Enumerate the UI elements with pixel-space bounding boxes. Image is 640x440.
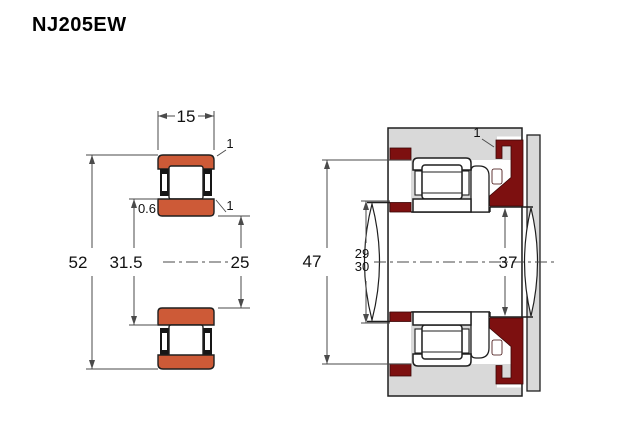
mounted-view: 47 29 30 37 1 xyxy=(303,125,556,396)
dim-rib-label: 31.5 xyxy=(109,253,142,272)
cage-pocket-right-lower xyxy=(205,333,210,350)
housing-shoulder-lower xyxy=(390,364,411,376)
arrow-right xyxy=(205,113,214,119)
roller xyxy=(422,325,462,359)
cage-pocket-left-upper xyxy=(162,174,167,191)
thrust-collar-upper xyxy=(471,166,489,212)
dim-chamfer-outer-label: 1 xyxy=(226,136,233,151)
cage-pocket-left-lower xyxy=(162,333,167,350)
thrust-collar-lower xyxy=(471,312,489,358)
bearing-drawing: 15 1 52 31.5 xyxy=(0,0,640,440)
labyrinth-notch-lower xyxy=(492,340,502,355)
dim-od-label: 52 xyxy=(69,253,88,272)
chamfer-inner-leader xyxy=(216,200,226,212)
dim-fillet-label: 1 xyxy=(473,125,480,140)
mounted-bearing-lower xyxy=(413,312,471,366)
roller-lower xyxy=(169,325,203,358)
dim-chamfer-inner-label: 1 xyxy=(226,198,233,213)
cage-bar-right xyxy=(462,329,469,353)
cage-bar-left xyxy=(415,171,422,195)
roller xyxy=(422,165,462,199)
dim-bore-label: 25 xyxy=(231,253,250,272)
cage-pocket-right-upper xyxy=(205,174,210,191)
side-view-lower-section xyxy=(158,308,214,369)
cage-bar-left xyxy=(415,329,422,353)
chamfer-outer-leader xyxy=(217,150,226,156)
catalog-page: NJ205EW xyxy=(0,0,640,440)
housing-shoulder-upper xyxy=(390,148,411,160)
arrow-left xyxy=(158,113,167,119)
page-title: NJ205EW xyxy=(32,14,127,37)
shaft-spacer-lower xyxy=(390,312,411,322)
cage-bar-right xyxy=(462,171,469,195)
labyrinth-notch-upper xyxy=(492,169,502,184)
shaft-spacer-upper xyxy=(390,203,411,213)
roller-upper xyxy=(169,166,203,199)
inner-ring-upper xyxy=(413,199,471,212)
dim-width-label: 15 xyxy=(177,107,196,126)
dim-housing-abutment-label: 47 xyxy=(303,252,322,271)
outer-ring-lower xyxy=(158,355,214,369)
inner-ring-lower xyxy=(413,312,471,325)
dim-right-abutment-label: 37 xyxy=(499,253,518,272)
inner-ring-upper xyxy=(158,199,214,216)
side-view-upper-section xyxy=(158,155,214,216)
dim-chamfer-rib-label: 0.6 xyxy=(138,201,156,216)
mounted-bearing-upper xyxy=(413,158,471,212)
side-view: 15 1 52 31.5 xyxy=(69,107,250,369)
inner-ring-lower xyxy=(158,308,214,325)
dim-shaft-abutment-max-label: 30 xyxy=(355,259,369,274)
